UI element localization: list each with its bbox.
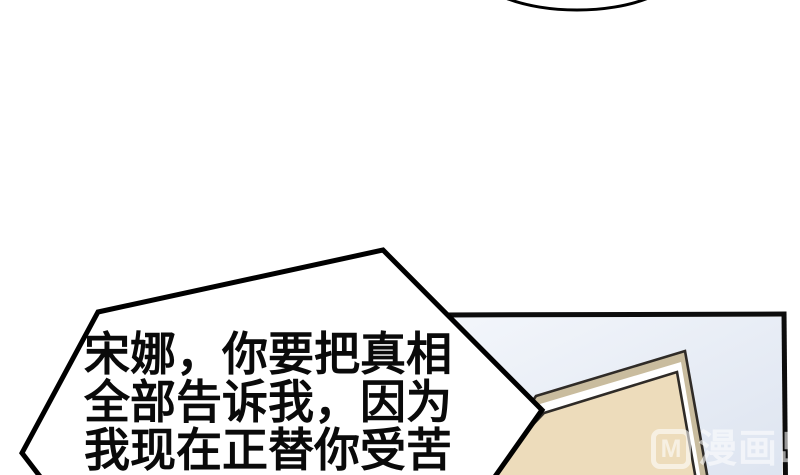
speech-text-line-3: 我现在正替你受苦 [84, 426, 452, 474]
watermark: M 漫画岛 [651, 429, 800, 469]
panel-border-top [443, 314, 787, 315]
speech-text-line-2: 全部告诉我，因为 [84, 378, 452, 426]
comic-page: 宋娜，你要把真相 全部告诉我，因为 我现在正替你受苦 M 漫画岛 [0, 0, 800, 475]
speech-bubble-text: 宋娜，你要把真相 全部告诉我，因为 我现在正替你受苦 [84, 330, 452, 474]
watermark-text: 漫画岛 [698, 430, 800, 469]
offscreen-bubble-arc [475, 0, 679, 10]
speech-text-line-1: 宋娜，你要把真相 [84, 330, 452, 378]
manhuadao-logo-icon: M [651, 429, 691, 469]
